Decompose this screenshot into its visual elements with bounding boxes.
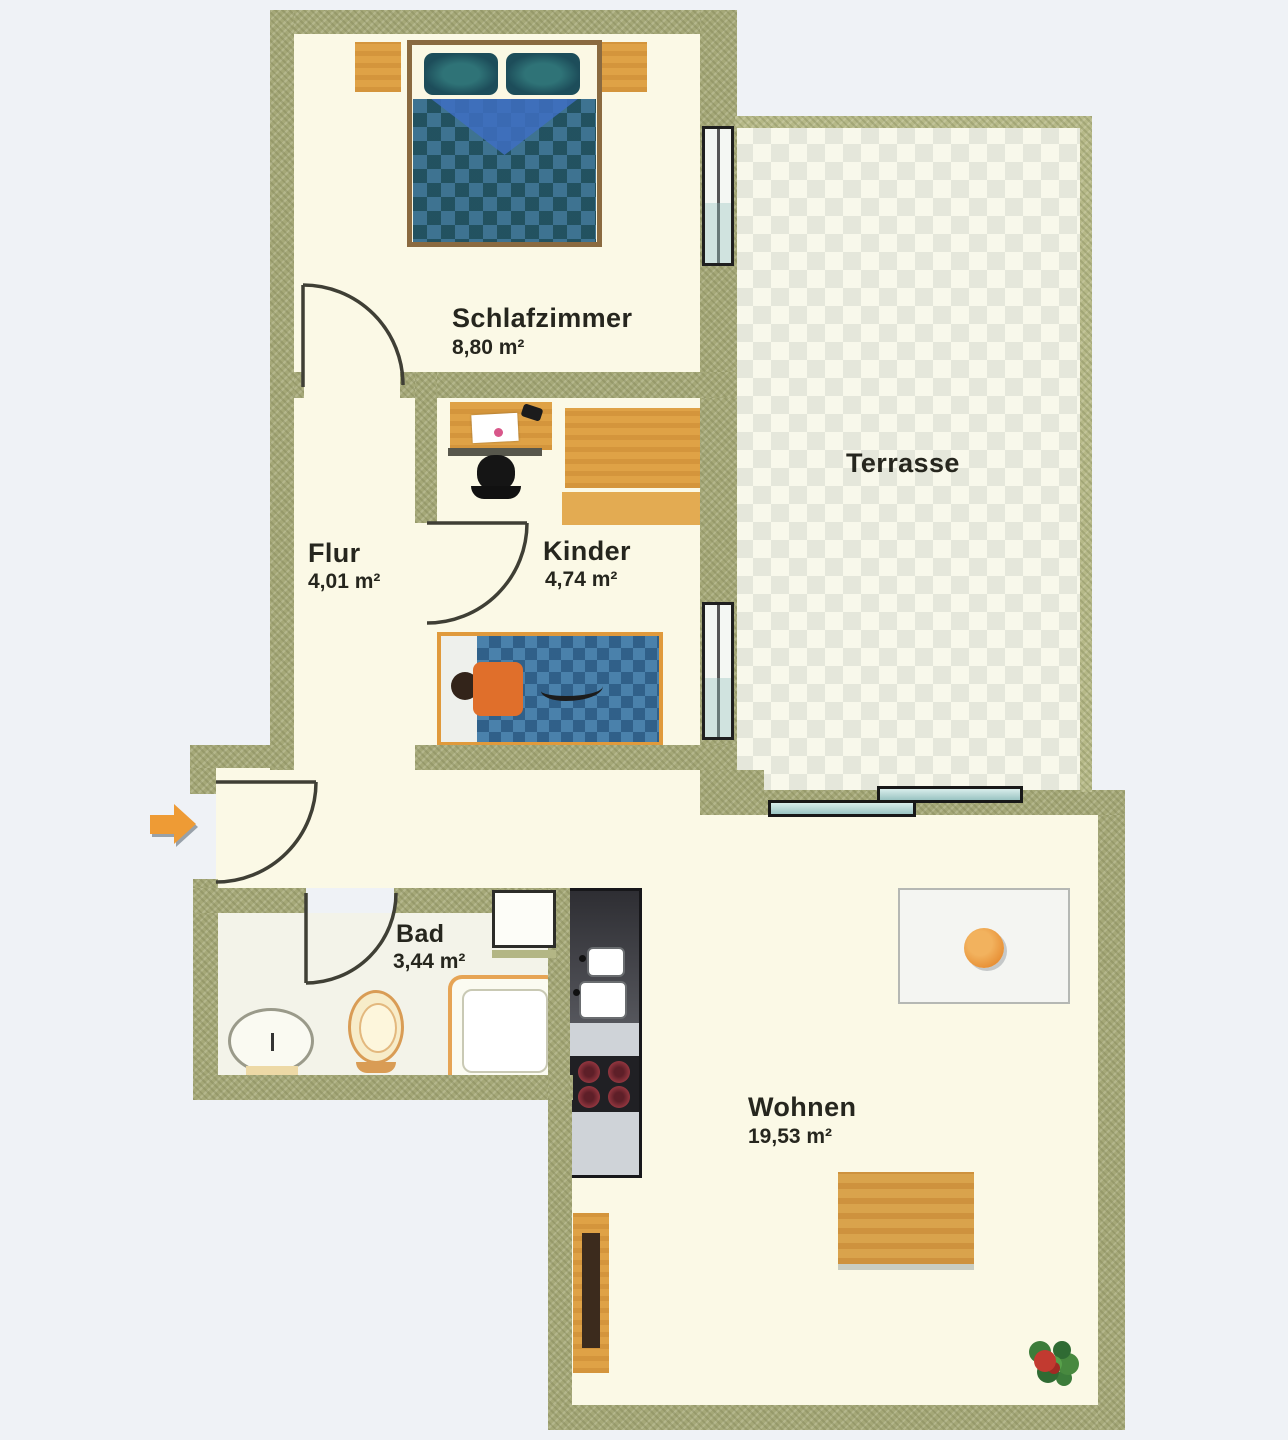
bath-door-swing (306, 893, 396, 983)
area-bad: 3,44 m² (393, 950, 465, 974)
area-kinder: 4,74 m² (545, 568, 617, 592)
label-wohnen: Wohnen (748, 1092, 856, 1123)
entry-door-swing (216, 782, 316, 882)
area-schlafzimmer: 8,80 m² (452, 336, 524, 360)
label-schlafzimmer: Schlafzimmer (452, 303, 632, 334)
floor-plan: Schlafzimmer 8,80 m² Flur 4,01 m² Kinder… (0, 0, 1288, 1440)
label-kinder: Kinder (543, 536, 631, 567)
area-wohnen: 19,53 m² (748, 1125, 832, 1149)
label-bad: Bad (396, 920, 444, 949)
bedroom-door-swing (303, 285, 403, 385)
label-flur: Flur (308, 538, 361, 569)
door-swings (0, 0, 1288, 1440)
kids-door-swing (427, 523, 527, 623)
area-flur: 4,01 m² (308, 570, 380, 594)
label-terrasse: Terrasse (846, 448, 960, 479)
